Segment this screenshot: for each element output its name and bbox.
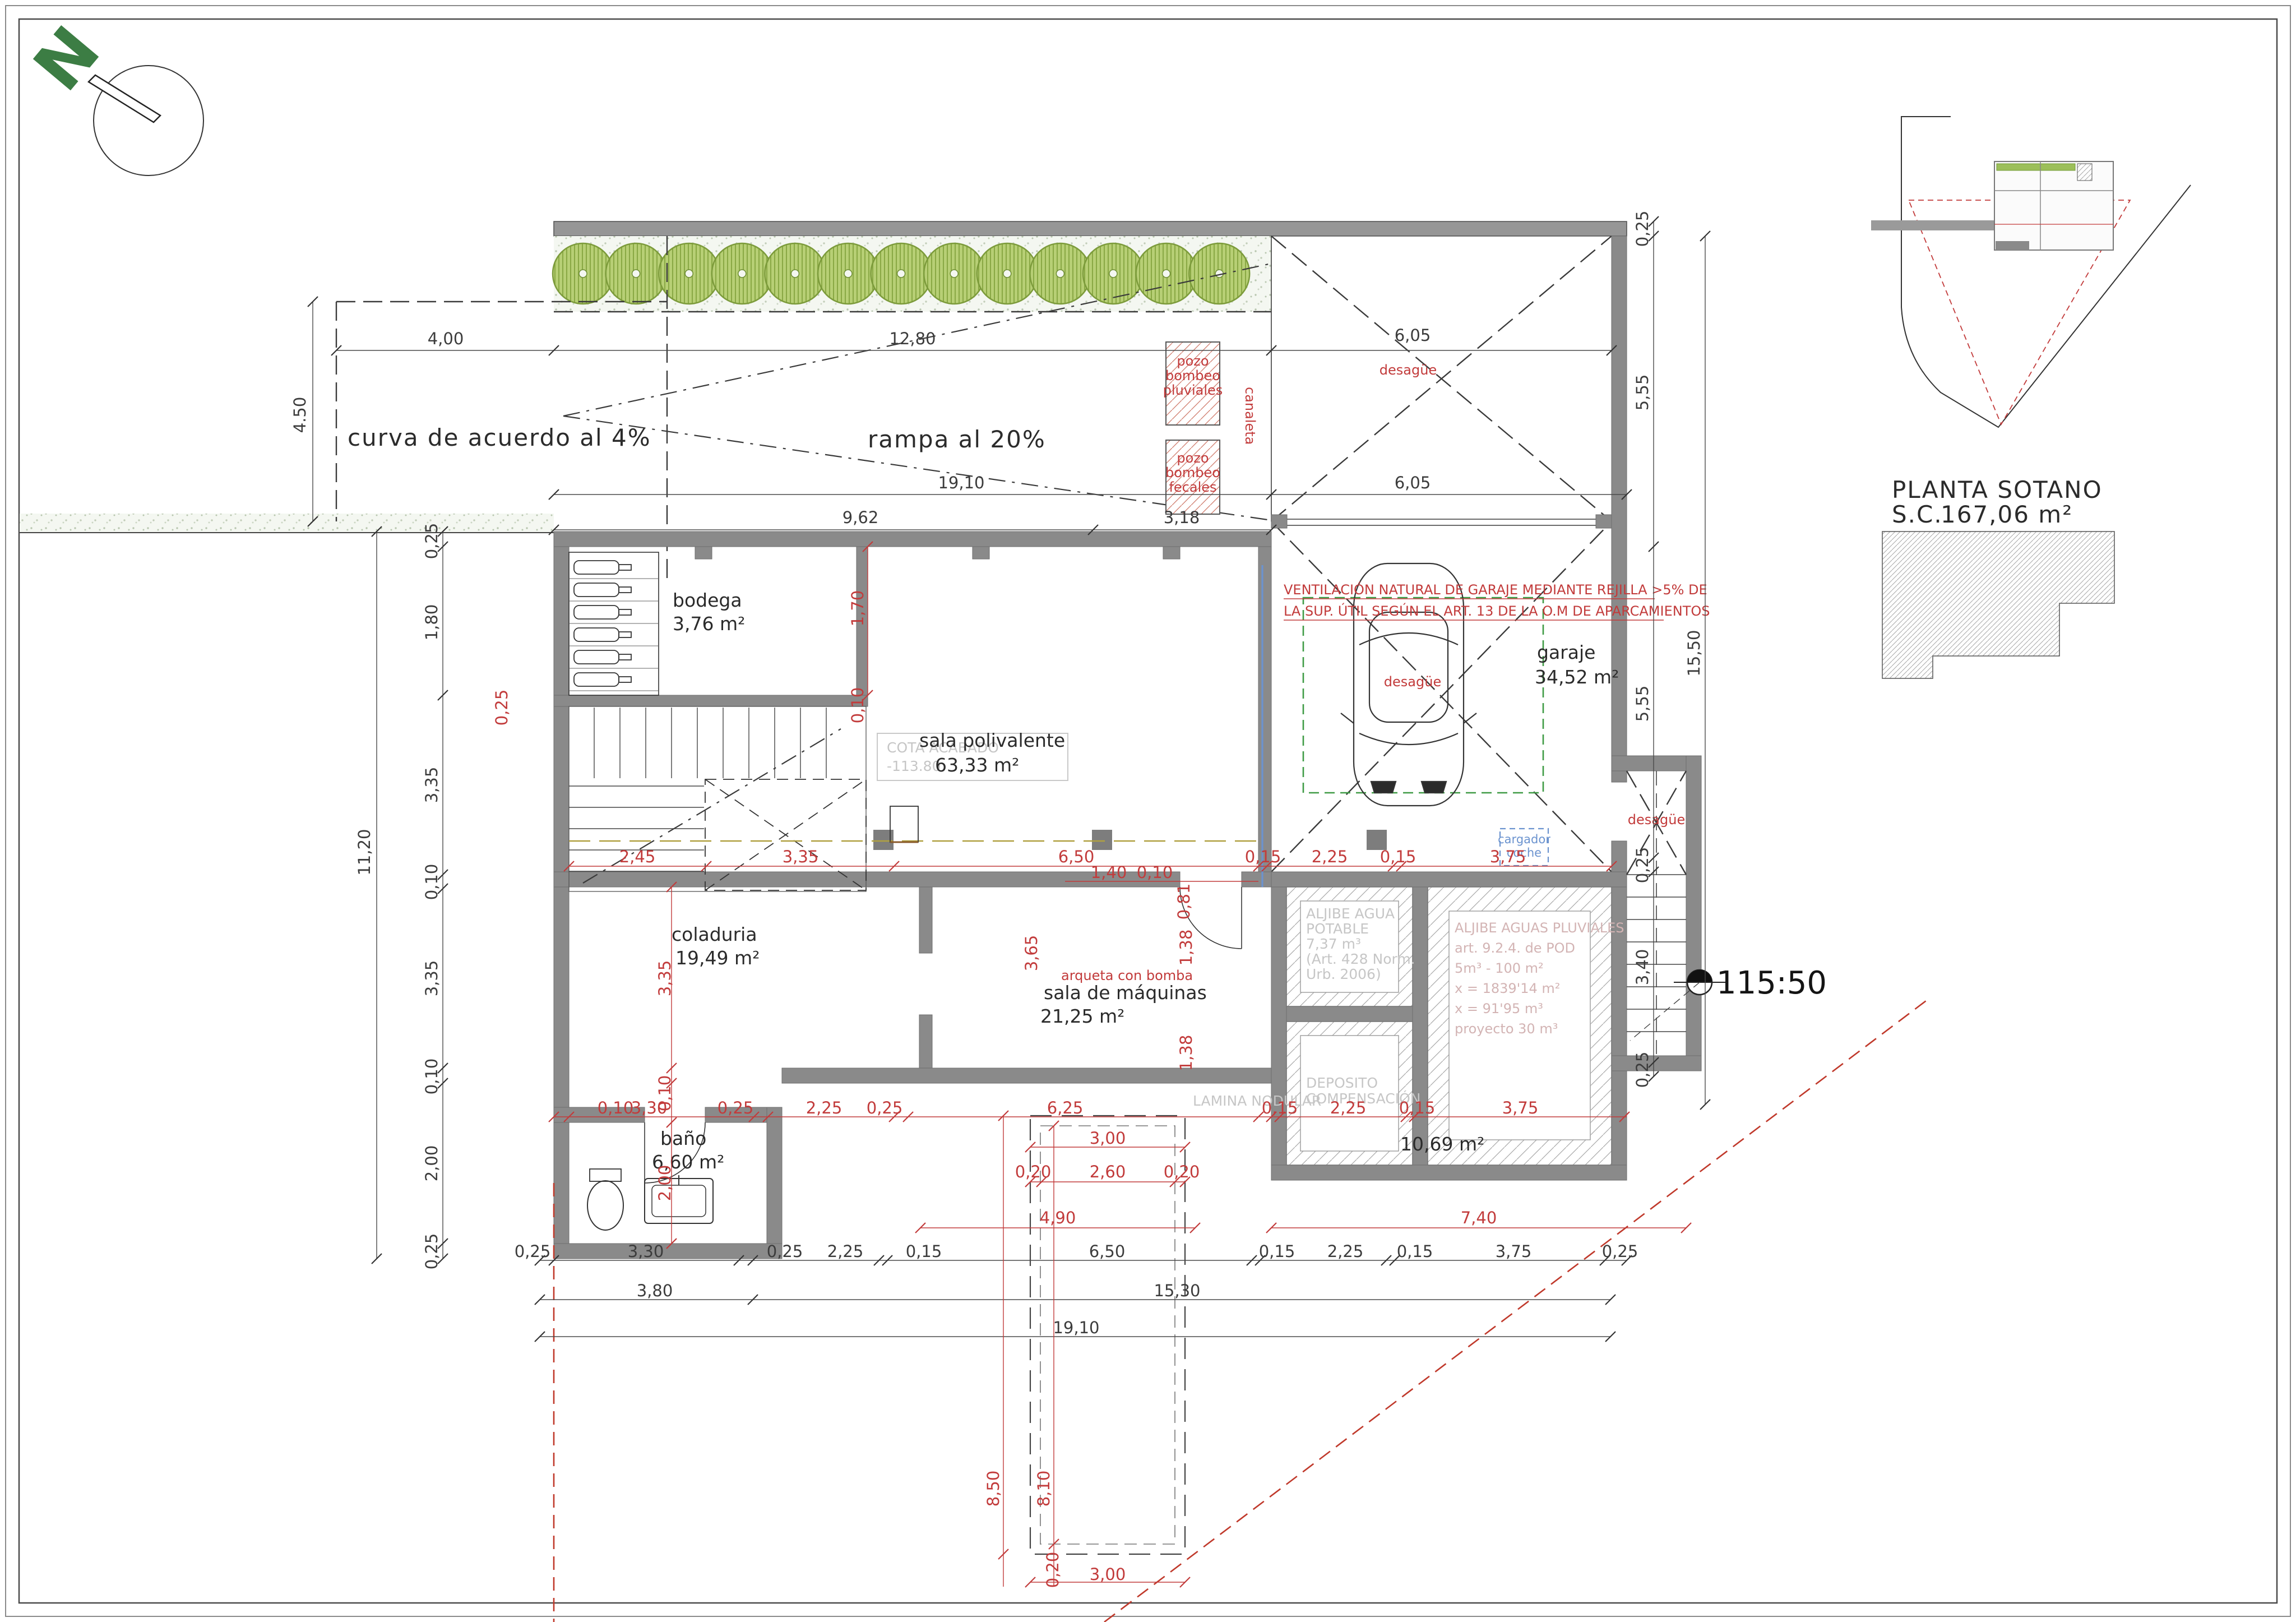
dimension-label: 3,65 bbox=[1022, 935, 1041, 972]
dimension-label: 3,18 bbox=[1164, 508, 1200, 527]
room-bodega-area: 3,76 m² bbox=[673, 613, 745, 635]
dimension-label: 3,35 bbox=[422, 767, 441, 803]
north-letter: N bbox=[19, 12, 115, 105]
dimension-label: 6,05 bbox=[1395, 326, 1431, 345]
dimension-label: 3,35 bbox=[655, 960, 674, 997]
dimension-label: 15,30 bbox=[1154, 1281, 1200, 1300]
room-coladuria-area: 19,49 m² bbox=[675, 947, 760, 969]
dimension-label: 0,20 bbox=[1043, 1552, 1062, 1588]
dimension-label: 0,15 bbox=[1259, 1242, 1295, 1261]
pozo-bombeo-fecales: pozobombeofecales bbox=[1165, 440, 1220, 514]
dimension-label: 3,30 bbox=[631, 1098, 668, 1117]
surface-label: S.C. bbox=[1892, 501, 1943, 528]
tank-free-area: 10,69 m² bbox=[1400, 1133, 1484, 1155]
wine-bottle-icon bbox=[569, 673, 659, 691]
dimension-label: 6,25 bbox=[1047, 1098, 1084, 1117]
dimension-label: 0,10 bbox=[598, 1098, 634, 1117]
dimension-label: 2,00 bbox=[422, 1145, 441, 1182]
dimension-label: 2,60 bbox=[1090, 1162, 1126, 1181]
north-arrow: N bbox=[19, 12, 203, 175]
dimension-label: 2,00 bbox=[655, 1165, 674, 1202]
dimension-label: 3,40 bbox=[1633, 949, 1652, 986]
tank-potable: ALJIBE AGUAPOTABLE7,37 m³(Art. 428 Norm.… bbox=[1286, 887, 1415, 1006]
dimension-label: 19,10 bbox=[1053, 1318, 1099, 1337]
dimension-label: 5,55 bbox=[1633, 686, 1652, 722]
dimension-label: 0,25 bbox=[1633, 1052, 1652, 1088]
dimension-label: 3,00 bbox=[1090, 1129, 1126, 1148]
dimension-label: 2,25 bbox=[1312, 847, 1348, 866]
dimension-label: 2,25 bbox=[1330, 1098, 1367, 1117]
column bbox=[1092, 830, 1112, 850]
dimension-label: 8,10 bbox=[1034, 1471, 1053, 1507]
garage-door bbox=[1271, 515, 1612, 528]
tree-trunk bbox=[950, 270, 958, 278]
level-mark: 115:50 bbox=[1716, 965, 1827, 1001]
tank-pluviales: ALJIBE AGUAS PLUVIALESart. 9.2.4. de POD… bbox=[1400, 887, 1624, 1165]
ramp-label: rampa al 20% bbox=[868, 426, 1046, 453]
dimension-label: 2,25 bbox=[827, 1242, 864, 1261]
room-garaje-name: garaje bbox=[1537, 641, 1595, 663]
street-band-left bbox=[20, 514, 554, 533]
dimension-label: 0,20 bbox=[1164, 1162, 1200, 1181]
room-bodega-name: bodega bbox=[673, 589, 742, 611]
tree-trunk bbox=[738, 270, 746, 278]
dimension-label: 8,50 bbox=[984, 1471, 1003, 1507]
shaft-drain-label: desagüe bbox=[1628, 812, 1685, 828]
dimension-label: 0,15 bbox=[1262, 1098, 1298, 1117]
dimension-label: 1,38 bbox=[1177, 930, 1196, 966]
dimension-label: 6,50 bbox=[1089, 1242, 1126, 1261]
footprint-shape bbox=[1882, 532, 2114, 678]
room-sala-maquinas-area: 21,25 m² bbox=[1040, 1005, 1124, 1027]
wine-bottle-icon bbox=[569, 606, 659, 623]
dimension-label: 0,10 bbox=[422, 1059, 441, 1095]
stair-shaft: desagüe bbox=[1627, 771, 1725, 1054]
dimension-label: 0,10 bbox=[848, 687, 867, 724]
dimension-label: 6,50 bbox=[1058, 847, 1095, 866]
dimension-label: 0,25 bbox=[515, 1242, 551, 1261]
dimension-label: 0,25 bbox=[867, 1098, 903, 1117]
arqueta-label: arqueta con bomba bbox=[1061, 968, 1193, 983]
dimension-label: 0,15 bbox=[906, 1242, 942, 1261]
dimension-label: 0,25 bbox=[422, 523, 441, 560]
tree-trunk bbox=[632, 270, 640, 278]
interior-stairs bbox=[569, 706, 866, 891]
dimension-label: 4,00 bbox=[428, 329, 464, 348]
tree-trunk bbox=[791, 270, 799, 278]
dimension-label: 3,30 bbox=[628, 1242, 664, 1261]
drawing-sheet: N curva de acuerdo al 4% rampa al 20% de… bbox=[0, 0, 2296, 1622]
dimension-label: 1,70 bbox=[848, 590, 867, 627]
dimension-label: 3,35 bbox=[422, 960, 441, 997]
inset-site-plan bbox=[1871, 117, 2191, 427]
wine-bottle-icon bbox=[569, 583, 659, 601]
dimension-label: 0,25 bbox=[1602, 1242, 1638, 1261]
tree-trunk bbox=[844, 270, 852, 278]
curve-label: curva de acuerdo al 4% bbox=[348, 424, 651, 451]
dimension-label: 3,00 bbox=[1090, 1565, 1126, 1584]
dimension-label: 2,25 bbox=[1327, 1242, 1364, 1261]
dimension-label: 0,10 bbox=[1137, 863, 1173, 882]
dimension-label: 0,25 bbox=[422, 1233, 441, 1270]
forecourt-drain-label: desagüe bbox=[1380, 362, 1437, 378]
floor-plan-svg: N curva de acuerdo al 4% rampa al 20% de… bbox=[0, 0, 2296, 1622]
pozo-bombeo-pluviales: pozobombeopluviales bbox=[1163, 342, 1223, 425]
wine-rack bbox=[569, 552, 659, 695]
dimension-label: 12,80 bbox=[889, 329, 936, 348]
plan-title: PLANTA SOTANO bbox=[1892, 476, 2103, 503]
dimension-label: 6,05 bbox=[1395, 473, 1431, 492]
dimension-label: 2,45 bbox=[619, 847, 656, 866]
dimension-label: 0,81 bbox=[1174, 884, 1193, 920]
forecourt: desagüe bbox=[1271, 236, 1612, 872]
ventilation-line1: VENTILACIÓN NATURAL DE GARAJE MEDIANTE R… bbox=[1284, 581, 1707, 598]
dimension-label: 3,35 bbox=[783, 847, 819, 866]
ventilation-line2: LA SUP. ÚTIL SEGÚN EL ART. 13 DE LA O.M … bbox=[1284, 602, 1710, 619]
dimension-label: 0,25 bbox=[492, 690, 511, 726]
tree-trunk bbox=[579, 270, 587, 278]
boiler bbox=[890, 806, 918, 842]
dimension-label: 11,20 bbox=[355, 829, 374, 875]
surface-value: 167,06 m² bbox=[1941, 501, 2073, 528]
dimension-label: 0,25 bbox=[1633, 211, 1652, 247]
dimension-label: 0,10 bbox=[422, 864, 441, 900]
dimension-label: 19,10 bbox=[938, 473, 984, 492]
dimension-label: 0,15 bbox=[1245, 847, 1281, 866]
tree-trunk bbox=[1003, 270, 1011, 278]
dimension-label: 5,55 bbox=[1633, 375, 1652, 411]
dimension-label: 0,25 bbox=[767, 1242, 803, 1261]
dimension-label: 15,50 bbox=[1684, 630, 1704, 676]
tree-trunk bbox=[1163, 270, 1170, 278]
room-coladuria-name: coladuria bbox=[672, 923, 757, 945]
dimension-label: 0,15 bbox=[1397, 1242, 1433, 1261]
wine-bottle-icon bbox=[569, 628, 659, 646]
room-bano-name: baño bbox=[660, 1127, 706, 1149]
dimension-label: 0,15 bbox=[1399, 1098, 1436, 1117]
dimension-label: 0,15 bbox=[1380, 847, 1417, 866]
wine-bottle-icon bbox=[569, 650, 659, 668]
street-wall bbox=[554, 221, 1627, 236]
tree-trunk bbox=[685, 270, 693, 278]
wine-bottle-icon bbox=[569, 561, 659, 579]
room-sala-polivalente-area: 63,33 m² bbox=[935, 754, 1019, 776]
tree-trunk bbox=[1109, 270, 1117, 278]
dimension-label: 1,80 bbox=[422, 604, 441, 641]
toilet-icon bbox=[587, 1169, 623, 1230]
lamina-label: LAMINA NODULAR bbox=[1193, 1093, 1321, 1109]
room-sala-polivalente-name: sala polivalente bbox=[919, 729, 1065, 751]
room-sala-maquinas-name: sala de máquinas bbox=[1044, 982, 1207, 1004]
planting-band bbox=[553, 236, 1271, 312]
dimension-label: 1,38 bbox=[1177, 1035, 1196, 1071]
dimension-label: 0,25 bbox=[717, 1098, 754, 1117]
dimension-label: 3,75 bbox=[1496, 1242, 1532, 1261]
garage-drain-label: desagüe bbox=[1384, 674, 1441, 690]
room-garaje-area: 34,52 m² bbox=[1535, 666, 1619, 688]
title-block: PLANTA SOTANO S.C. 167,06 m² bbox=[1882, 476, 2114, 678]
canaleta-label: canaleta bbox=[1242, 387, 1258, 445]
dimension-label: 4.50 bbox=[290, 397, 309, 433]
dimension-label: 4,90 bbox=[1040, 1208, 1076, 1227]
dimension-label: 3,80 bbox=[637, 1281, 673, 1300]
dimension-label: 3,75 bbox=[1490, 847, 1526, 866]
tree-trunk bbox=[897, 270, 905, 278]
dimension-label: 9,62 bbox=[843, 508, 879, 527]
dimension-label: 0,20 bbox=[1015, 1162, 1052, 1181]
dimension-label: 0,25 bbox=[1633, 847, 1652, 884]
dimension-label: 3,75 bbox=[1502, 1098, 1539, 1117]
dimension-label: 2,25 bbox=[806, 1098, 843, 1117]
dimension-label: 1,40 bbox=[1091, 863, 1127, 882]
dimension-label: 7,40 bbox=[1461, 1208, 1497, 1227]
tree-trunk bbox=[1056, 270, 1064, 278]
